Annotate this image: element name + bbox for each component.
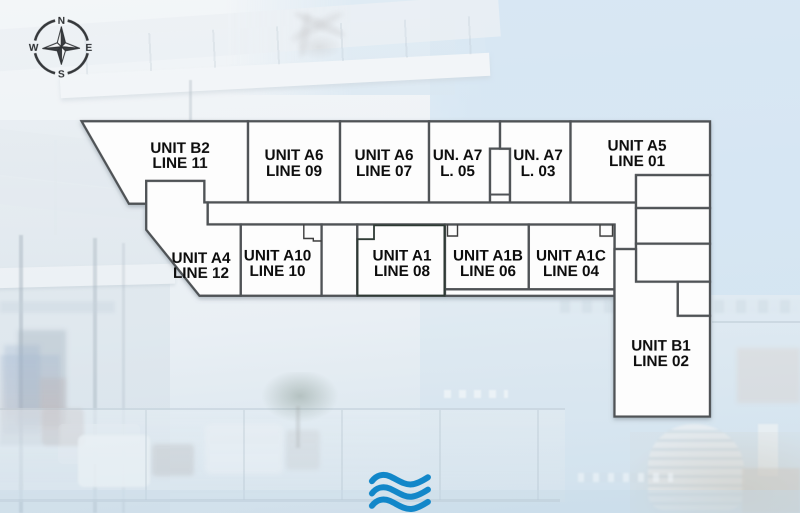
svg-text:LINE 01: LINE 01 (609, 153, 666, 170)
svg-text:LINE 11: LINE 11 (152, 155, 208, 172)
svg-text:LINE 09: LINE 09 (266, 163, 322, 180)
svg-text:W: W (29, 43, 39, 54)
svg-text:S: S (58, 69, 65, 80)
svg-text:LINE 10: LINE 10 (249, 263, 305, 280)
svg-text:LINE 12: LINE 12 (173, 265, 229, 282)
svg-text:N: N (58, 16, 65, 27)
svg-text:L. 05: L. 05 (440, 163, 475, 180)
svg-text:UNIT A6: UNIT A6 (355, 147, 414, 164)
svg-text:UNIT A10: UNIT A10 (244, 247, 311, 264)
svg-text:LINE 07: LINE 07 (356, 163, 412, 180)
svg-text:UN. A7: UN. A7 (433, 147, 483, 164)
svg-text:E: E (85, 43, 92, 54)
svg-text:LINE 06: LINE 06 (460, 263, 516, 280)
svg-text:UNIT A1C: UNIT A1C (536, 247, 606, 264)
svg-text:UN. A7: UN. A7 (513, 147, 563, 164)
svg-text:L. 03: L. 03 (521, 163, 556, 180)
svg-text:UNIT B1: UNIT B1 (631, 337, 691, 354)
svg-text:LINE 02: LINE 02 (633, 353, 689, 370)
svg-text:LINE 08: LINE 08 (374, 263, 431, 280)
svg-text:UNIT A1: UNIT A1 (373, 247, 432, 264)
svg-text:UNIT A1B: UNIT A1B (453, 247, 523, 264)
svg-text:LINE 04: LINE 04 (543, 263, 600, 280)
svg-text:UNIT A5: UNIT A5 (608, 137, 667, 154)
svg-text:UNIT A6: UNIT A6 (265, 147, 324, 164)
